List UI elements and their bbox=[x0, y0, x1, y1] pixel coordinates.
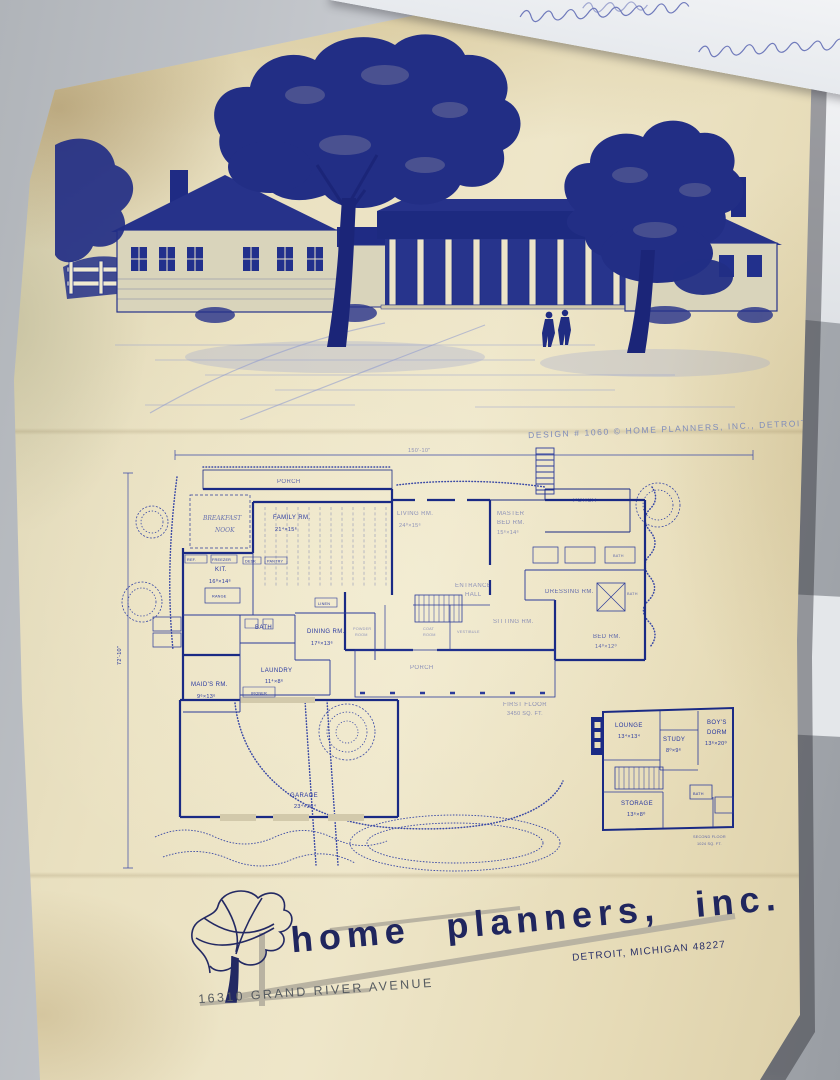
label-pantry: PANTRY bbox=[267, 560, 284, 564]
label-lounge-dim: 13⁴×13⁴ bbox=[618, 733, 641, 740]
label-master: MASTER bbox=[497, 511, 525, 517]
label-dining-room: DINING RM. bbox=[307, 629, 345, 635]
label-sitting-room: SITTING RM. bbox=[493, 619, 534, 625]
label-powder: POWDER bbox=[353, 627, 371, 631]
figures bbox=[542, 310, 571, 347]
label-hall: HALL bbox=[465, 592, 482, 598]
label-dining-dim: 17⁶×13⁶ bbox=[311, 640, 333, 647]
overall-depth-dim: 72'-10" bbox=[117, 646, 123, 665]
label-master-dim: 15⁶×14⁶ bbox=[497, 529, 519, 536]
label-bed-dim: 14⁰×12⁰ bbox=[595, 643, 617, 650]
label-coat-room: ROOM bbox=[423, 633, 436, 637]
label-ironer: IRONER bbox=[251, 692, 267, 696]
label-study: STUDY bbox=[663, 737, 685, 743]
label-breakfast: BREAKFAST bbox=[202, 515, 242, 522]
label-vestibule: VESTIBULE bbox=[457, 630, 480, 634]
label-bed-room: BED RM. bbox=[593, 634, 621, 640]
label-porch-center: PORCH bbox=[410, 665, 434, 671]
label-storage: STORAGE bbox=[621, 801, 653, 807]
photographed-blueprint-scene: DESIGN # 1060 © HOME PLANNERS, INC., DET… bbox=[0, 0, 840, 1080]
label-boys-dim: 13⁶×20⁰ bbox=[705, 740, 728, 747]
blueprint-sheet: DESIGN # 1060 © HOME PLANNERS, INC., DET… bbox=[0, 0, 840, 1080]
left-wing-facade bbox=[117, 230, 339, 312]
label-bath-second: BATH bbox=[693, 792, 704, 796]
second-floor-plan: LOUNGE 13⁴×13⁴ STUDY 8⁰×9⁶ BOY'S DORM 13… bbox=[591, 708, 733, 846]
label-kitchen-dim: 16⁰×14⁶ bbox=[209, 578, 231, 585]
label-laundry-dim: 11⁴×8⁶ bbox=[265, 678, 283, 685]
logo-tree-icon bbox=[192, 891, 292, 1002]
label-master-2: BED RM. bbox=[497, 520, 525, 526]
label-study-dim: 8⁰×9⁶ bbox=[666, 747, 681, 754]
porch-steps bbox=[381, 305, 649, 309]
label-second-floor-sqft: 1024 SQ. FT. bbox=[697, 842, 722, 846]
label-storage-dim: 13⁶×8⁰ bbox=[627, 811, 646, 818]
floor-plan: 150'-10" 72'-10" bbox=[115, 445, 770, 880]
label-first-floor-caption: FIRST FLOOR bbox=[503, 702, 547, 708]
label-powder-room: ROOM bbox=[355, 633, 368, 637]
label-garage-dim: 23⁴×26⁴ bbox=[294, 803, 317, 810]
label-maids-room: MAID'S RM. bbox=[191, 682, 228, 688]
label-maids-dim: 9⁶×13⁶ bbox=[197, 693, 216, 700]
door-openings bbox=[220, 697, 364, 821]
label-ref: REF. bbox=[187, 558, 196, 562]
house-rendering-illustration bbox=[55, 15, 795, 420]
label-living-dim: 24⁰×15⁶ bbox=[399, 522, 421, 529]
label-boys-dorm: DORM bbox=[707, 730, 727, 736]
label-nook: NOOK bbox=[214, 527, 235, 534]
label-kitchen: KIT. bbox=[215, 567, 227, 573]
chimney-flues bbox=[595, 722, 601, 748]
label-garage: GARAGE bbox=[290, 793, 318, 799]
label-coat: COAT bbox=[423, 627, 435, 631]
label-family-dim: 21⁴×15⁶ bbox=[275, 526, 297, 533]
label-entrance: ENTRANCE bbox=[455, 583, 491, 589]
design-credit-line: DESIGN # 1060 © HOME PLANNERS, INC., DET… bbox=[528, 418, 808, 440]
label-linen: LINEN bbox=[318, 602, 330, 606]
label-range: RANGE bbox=[212, 595, 227, 599]
first-floor-labels: PORCH BREAKFAST NOOK FAMILY RM. 21⁴×15⁶ … bbox=[187, 479, 638, 810]
tree-shadow-right bbox=[540, 349, 770, 377]
label-boys: BOY'S bbox=[707, 720, 727, 726]
label-bath-3: BATH bbox=[627, 592, 638, 596]
label-desk: DESK bbox=[245, 560, 256, 564]
label-freezer: FREEZER bbox=[212, 558, 231, 562]
label-bath: BATH bbox=[255, 625, 272, 631]
label-living-room: LIVING RM. bbox=[397, 511, 433, 517]
label-dressing-room: DRESSING RM. bbox=[545, 589, 594, 595]
label-bath-2: BATH bbox=[613, 554, 624, 558]
label-second-floor-caption: SECOND FLOOR bbox=[693, 835, 726, 839]
overall-width-dim: 150'-10" bbox=[408, 448, 431, 454]
label-porch-right: PORCH bbox=[573, 498, 597, 504]
label-laundry: LAUNDRY bbox=[261, 668, 292, 674]
label-family-room: FAMILY RM. bbox=[273, 515, 310, 521]
dimension-lines bbox=[123, 450, 753, 868]
label-first-floor-sqft: 3450 SQ. FT. bbox=[507, 711, 543, 717]
label-lounge: LOUNGE bbox=[615, 723, 643, 729]
label-porch-top: PORCH bbox=[277, 479, 301, 485]
